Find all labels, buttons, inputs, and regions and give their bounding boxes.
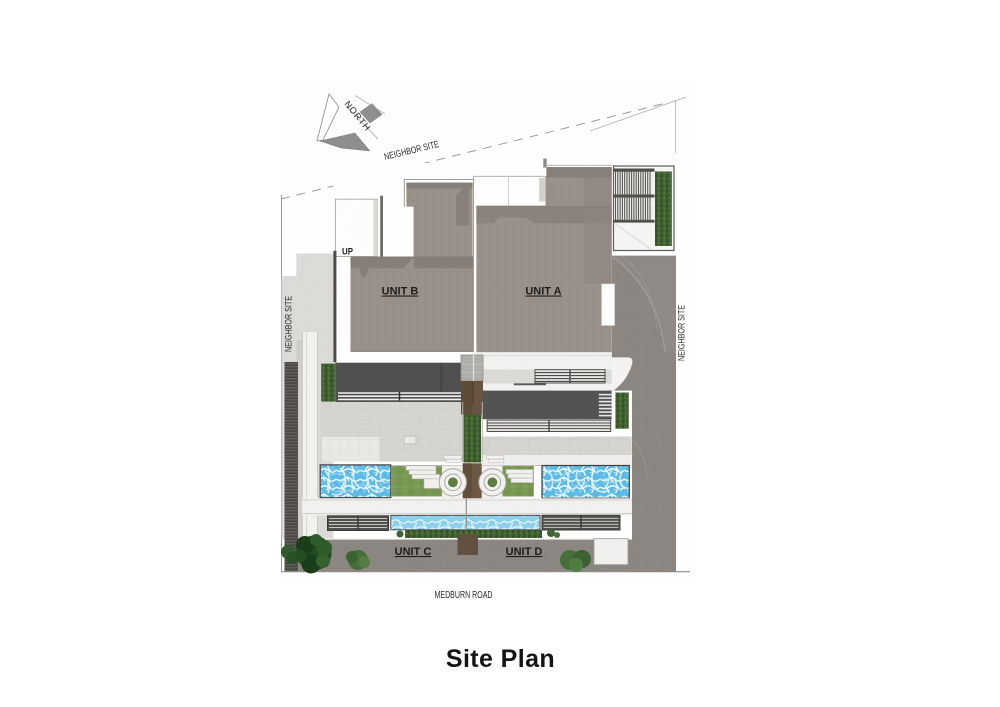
svg-text:Site Plan: Site Plan: [446, 645, 555, 673]
svg-text:MEDBURN ROAD: MEDBURN ROAD: [435, 590, 493, 601]
